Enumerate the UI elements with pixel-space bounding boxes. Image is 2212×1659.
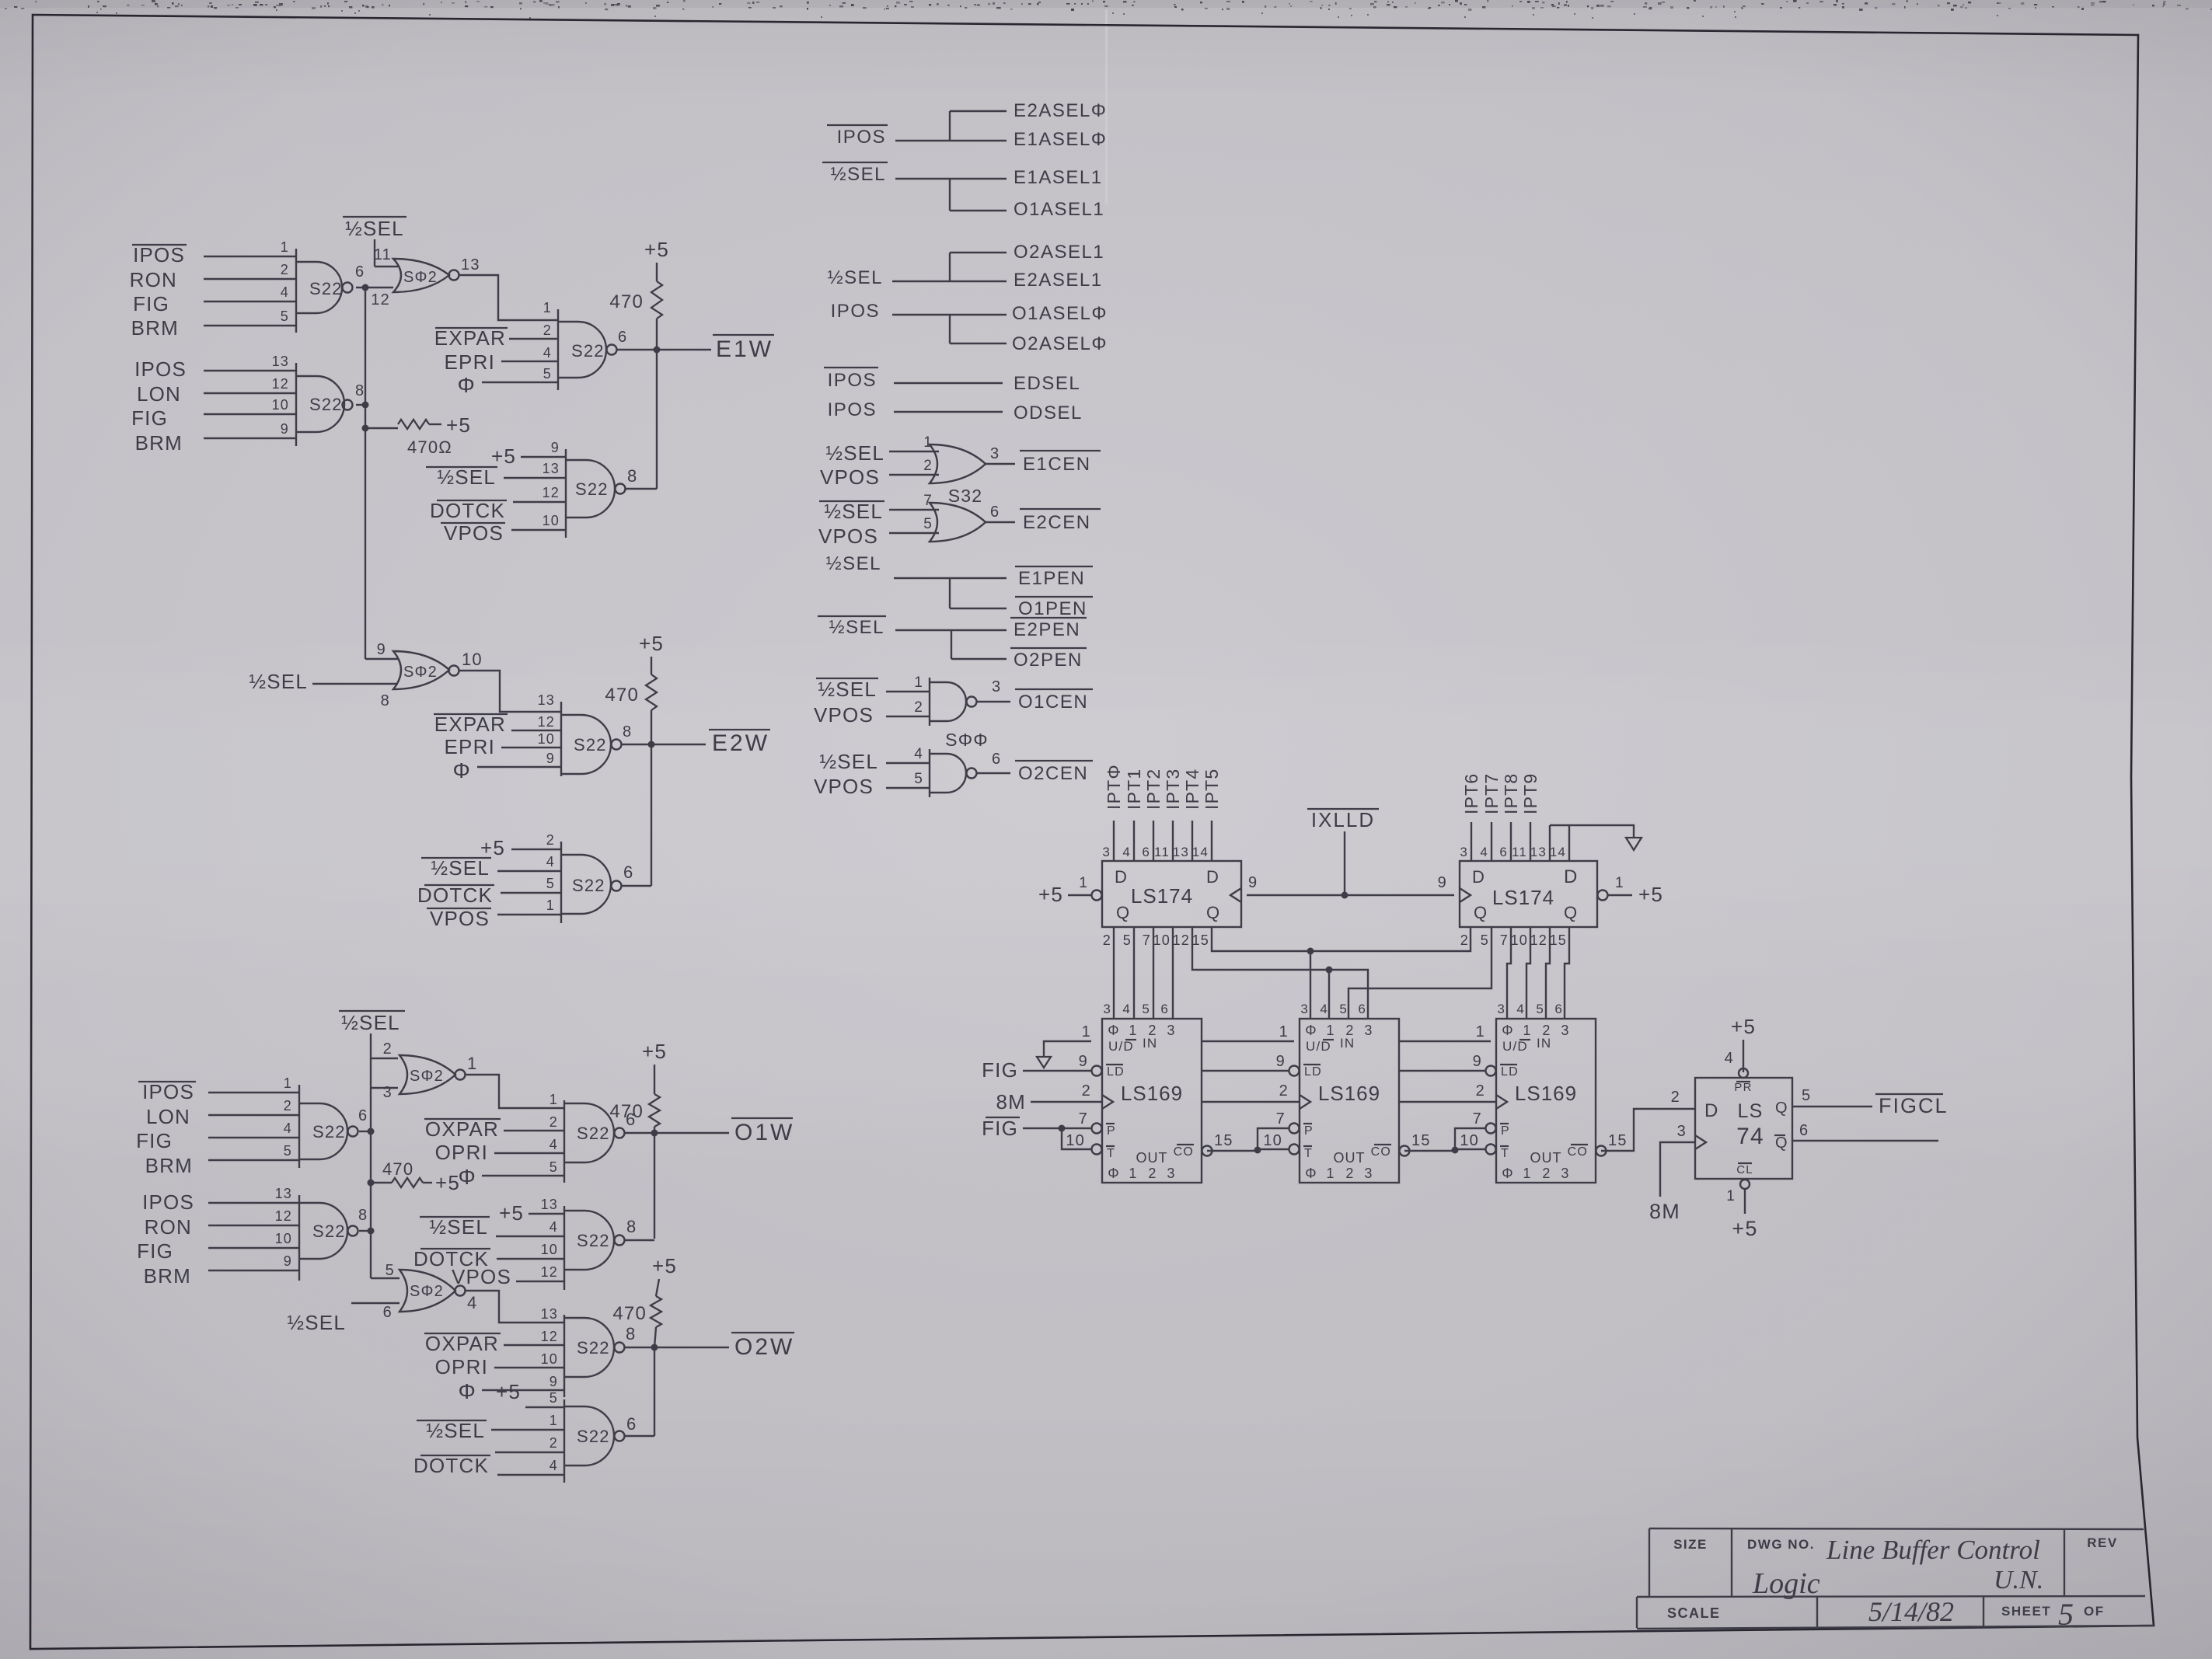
svg-text:S22: S22 bbox=[309, 395, 343, 414]
svg-text:ODSEL: ODSEL bbox=[1014, 403, 1083, 423]
svg-text:IN: IN bbox=[1143, 1036, 1157, 1051]
svg-text:9: 9 bbox=[1438, 874, 1447, 891]
svg-text:OPRI: OPRI bbox=[435, 1355, 488, 1378]
svg-text:15: 15 bbox=[1214, 1132, 1233, 1149]
svg-text:1: 1 bbox=[281, 239, 289, 255]
svg-text:13: 13 bbox=[272, 354, 289, 369]
svg-text:6: 6 bbox=[618, 329, 627, 346]
svg-text:15: 15 bbox=[1192, 932, 1209, 948]
svg-text:Φ: Φ bbox=[458, 1165, 476, 1189]
svg-text:4: 4 bbox=[1320, 1002, 1328, 1016]
svg-text:1: 1 bbox=[1082, 1023, 1091, 1040]
svg-text:8: 8 bbox=[355, 382, 365, 399]
svg-text:½SEL: ½SEL bbox=[828, 267, 883, 288]
svg-text:5: 5 bbox=[914, 771, 923, 787]
svg-text:IPT3: IPT3 bbox=[1163, 769, 1183, 810]
svg-text:6: 6 bbox=[1499, 845, 1508, 859]
svg-text:+5: +5 bbox=[1638, 883, 1663, 906]
svg-text:E2ASELΦ: E2ASELΦ bbox=[1014, 100, 1107, 121]
svg-text:S22: S22 bbox=[572, 876, 605, 895]
svg-text:13: 13 bbox=[1530, 845, 1547, 859]
svg-text:Logic: Logic bbox=[1752, 1567, 1820, 1600]
svg-text:+5: +5 bbox=[642, 1040, 667, 1063]
svg-text:U/D: U/D bbox=[1306, 1039, 1331, 1054]
svg-text:8M: 8M bbox=[1649, 1200, 1680, 1223]
svg-text:2: 2 bbox=[1148, 1166, 1157, 1181]
svg-text:SΦΦ: SΦΦ bbox=[945, 730, 989, 750]
svg-text:8: 8 bbox=[623, 723, 632, 741]
svg-text:Φ: Φ bbox=[1305, 1166, 1317, 1181]
svg-text:10: 10 bbox=[1511, 932, 1528, 948]
svg-text:PR: PR bbox=[1734, 1081, 1752, 1094]
svg-text:15: 15 bbox=[1411, 1132, 1431, 1149]
svg-text:12: 12 bbox=[371, 291, 390, 308]
svg-text:½SEL: ½SEL bbox=[249, 670, 308, 693]
svg-text:Q: Q bbox=[1206, 903, 1220, 922]
svg-text:13: 13 bbox=[543, 461, 560, 476]
svg-text:SΦ2: SΦ2 bbox=[403, 269, 438, 286]
svg-text:IPOS: IPOS bbox=[142, 1190, 194, 1214]
svg-text:3: 3 bbox=[992, 678, 1001, 695]
svg-text:½SEL: ½SEL bbox=[831, 164, 886, 185]
svg-text:½SEL: ½SEL bbox=[431, 856, 490, 880]
svg-text:9: 9 bbox=[284, 1253, 292, 1269]
svg-text:IPOS: IPOS bbox=[828, 399, 877, 420]
svg-text:½SEL: ½SEL bbox=[287, 1311, 346, 1334]
svg-text:CO: CO bbox=[1371, 1145, 1391, 1159]
svg-text:1: 1 bbox=[1079, 875, 1088, 891]
svg-text:6: 6 bbox=[1358, 1002, 1366, 1016]
svg-text:RON: RON bbox=[130, 268, 177, 291]
svg-text:5: 5 bbox=[1123, 932, 1132, 948]
svg-text:LS169: LS169 bbox=[1515, 1082, 1577, 1105]
svg-text:5: 5 bbox=[546, 876, 555, 891]
svg-text:15: 15 bbox=[1550, 932, 1567, 948]
svg-text:E1W: E1W bbox=[716, 336, 773, 362]
svg-text:S22: S22 bbox=[575, 479, 609, 499]
svg-text:SΦ2: SΦ2 bbox=[403, 664, 438, 681]
svg-text:12: 12 bbox=[272, 376, 289, 392]
svg-text:6: 6 bbox=[1142, 845, 1150, 859]
svg-text:O2PEN: O2PEN bbox=[1014, 650, 1083, 671]
svg-text:2: 2 bbox=[1460, 932, 1469, 948]
svg-text:T: T bbox=[1501, 1147, 1509, 1160]
svg-text:12: 12 bbox=[275, 1208, 292, 1224]
svg-text:Q: Q bbox=[1116, 903, 1130, 922]
svg-text:5: 5 bbox=[1481, 932, 1489, 948]
svg-text:1: 1 bbox=[1615, 875, 1624, 891]
svg-text:U.N.: U.N. bbox=[1994, 1566, 2043, 1595]
svg-text:1: 1 bbox=[1279, 1023, 1289, 1040]
svg-text:1: 1 bbox=[1476, 1023, 1485, 1040]
svg-text:6: 6 bbox=[626, 1414, 637, 1434]
svg-text:LS174: LS174 bbox=[1131, 884, 1193, 908]
svg-text:½SEL: ½SEL bbox=[345, 217, 404, 240]
svg-text:Φ: Φ bbox=[1108, 1023, 1120, 1038]
svg-text:10: 10 bbox=[1460, 1132, 1479, 1149]
svg-text:Φ: Φ bbox=[1502, 1166, 1514, 1181]
svg-text:3: 3 bbox=[1300, 1002, 1309, 1016]
svg-text:IPOS: IPOS bbox=[831, 301, 880, 322]
svg-text:IPT6: IPT6 bbox=[1461, 773, 1481, 814]
svg-text:10: 10 bbox=[541, 1351, 558, 1367]
svg-text:S22: S22 bbox=[571, 341, 605, 361]
svg-text:1: 1 bbox=[284, 1075, 292, 1091]
svg-text:7: 7 bbox=[1473, 1110, 1482, 1127]
svg-text:12: 12 bbox=[1173, 932, 1190, 948]
svg-text:S32: S32 bbox=[948, 486, 983, 506]
svg-text:470: 470 bbox=[605, 685, 639, 706]
svg-text:Φ: Φ bbox=[452, 758, 471, 782]
svg-text:½SEL: ½SEL bbox=[437, 465, 496, 489]
svg-text:E1CEN: E1CEN bbox=[1023, 454, 1091, 475]
svg-text:+5: +5 bbox=[1731, 1015, 1756, 1038]
svg-text:2: 2 bbox=[284, 1098, 292, 1114]
svg-text:1: 1 bbox=[1523, 1023, 1531, 1038]
svg-text:14: 14 bbox=[1192, 845, 1209, 859]
svg-text:2: 2 bbox=[1345, 1166, 1354, 1181]
svg-text:FIG: FIG bbox=[137, 1239, 173, 1263]
svg-text:10: 10 bbox=[272, 397, 289, 413]
svg-text:IPOS: IPOS bbox=[142, 1080, 194, 1103]
svg-text:SΦ2: SΦ2 bbox=[410, 1068, 444, 1085]
svg-text:LD: LD bbox=[1107, 1065, 1125, 1079]
svg-text:CL: CL bbox=[1736, 1163, 1753, 1176]
svg-text:SCALE: SCALE bbox=[1667, 1605, 1721, 1621]
svg-text:LS174: LS174 bbox=[1492, 886, 1554, 909]
svg-text:FIG: FIG bbox=[982, 1117, 1018, 1140]
svg-text:IXLLD: IXLLD bbox=[1311, 808, 1375, 831]
svg-text:VPOS: VPOS bbox=[444, 521, 504, 545]
svg-text:6: 6 bbox=[1799, 1122, 1809, 1139]
svg-text:2: 2 bbox=[281, 262, 289, 277]
svg-text:5: 5 bbox=[543, 366, 552, 382]
svg-text:+5: +5 bbox=[652, 1254, 677, 1277]
svg-text:O1W: O1W bbox=[734, 1120, 794, 1145]
svg-text:IPT8: IPT8 bbox=[1501, 773, 1521, 814]
svg-text:LS169: LS169 bbox=[1121, 1082, 1183, 1105]
svg-text:O2W: O2W bbox=[734, 1334, 794, 1360]
svg-text:LON: LON bbox=[137, 382, 181, 406]
svg-text:3: 3 bbox=[1103, 1002, 1111, 1016]
svg-text:8M: 8M bbox=[996, 1090, 1026, 1114]
svg-text:BRM: BRM bbox=[131, 316, 179, 340]
svg-text:10: 10 bbox=[1263, 1132, 1282, 1149]
svg-text:BRM: BRM bbox=[145, 1154, 193, 1177]
svg-text:5: 5 bbox=[281, 308, 289, 324]
svg-text:9: 9 bbox=[1079, 1053, 1088, 1070]
svg-text:4: 4 bbox=[550, 1137, 558, 1152]
svg-text:13: 13 bbox=[541, 1306, 558, 1322]
svg-text:4: 4 bbox=[1122, 1002, 1131, 1016]
svg-text:9: 9 bbox=[281, 421, 289, 437]
svg-text:DOTCK: DOTCK bbox=[417, 884, 493, 907]
svg-text:BRM: BRM bbox=[135, 431, 183, 455]
svg-text:+5: +5 bbox=[446, 413, 471, 437]
svg-text:6: 6 bbox=[355, 263, 365, 281]
svg-text:13: 13 bbox=[1173, 845, 1189, 859]
svg-text:3: 3 bbox=[1167, 1023, 1175, 1038]
svg-text:13: 13 bbox=[461, 256, 480, 274]
svg-text:3: 3 bbox=[1497, 1002, 1505, 1016]
svg-text:8: 8 bbox=[381, 692, 390, 709]
svg-text:4: 4 bbox=[550, 1219, 558, 1235]
svg-text:1: 1 bbox=[550, 1092, 558, 1107]
svg-text:15: 15 bbox=[1608, 1132, 1628, 1149]
svg-text:EDSEL: EDSEL bbox=[1014, 373, 1080, 394]
svg-text:1: 1 bbox=[546, 897, 555, 913]
svg-text:LS169: LS169 bbox=[1318, 1082, 1380, 1105]
svg-text:½SEL: ½SEL bbox=[824, 500, 883, 523]
svg-text:OUT: OUT bbox=[1530, 1150, 1562, 1166]
svg-text:OXPAR: OXPAR bbox=[425, 1117, 499, 1141]
svg-text:12: 12 bbox=[538, 714, 555, 730]
svg-text:4: 4 bbox=[1122, 845, 1131, 859]
svg-text:+5: +5 bbox=[435, 1171, 460, 1194]
svg-text:O2ASELΦ: O2ASELΦ bbox=[1012, 333, 1108, 354]
svg-text:FIG: FIG bbox=[133, 292, 169, 315]
svg-text:12: 12 bbox=[541, 1264, 558, 1280]
svg-text:½SEL: ½SEL bbox=[819, 750, 878, 773]
svg-text:FIG: FIG bbox=[131, 406, 168, 430]
svg-text:6: 6 bbox=[990, 504, 1000, 521]
svg-text:10: 10 bbox=[462, 650, 483, 669]
svg-text:470: 470 bbox=[612, 1303, 647, 1324]
svg-text:4: 4 bbox=[550, 1458, 558, 1473]
svg-text:D: D bbox=[1472, 867, 1485, 887]
svg-text:74: 74 bbox=[1736, 1124, 1764, 1149]
svg-text:1: 1 bbox=[1726, 1188, 1736, 1204]
svg-text:2: 2 bbox=[1279, 1082, 1289, 1100]
svg-text:+5: +5 bbox=[644, 238, 669, 261]
svg-text:10: 10 bbox=[1153, 932, 1171, 948]
svg-text:Φ: Φ bbox=[1305, 1023, 1317, 1038]
svg-text:4: 4 bbox=[914, 746, 923, 762]
svg-text:P: P bbox=[1107, 1124, 1116, 1138]
svg-text:O1ASEL1: O1ASEL1 bbox=[1014, 199, 1104, 220]
svg-text:6: 6 bbox=[1160, 1002, 1169, 1016]
svg-text:IPT9: IPT9 bbox=[1520, 773, 1540, 814]
svg-text:5: 5 bbox=[1536, 1002, 1544, 1016]
svg-text:9: 9 bbox=[1248, 874, 1258, 891]
svg-text:+5: +5 bbox=[499, 1201, 524, 1225]
svg-text:OPRI: OPRI bbox=[435, 1141, 488, 1164]
svg-text:EPRI: EPRI bbox=[445, 350, 495, 374]
svg-text:4: 4 bbox=[1725, 1050, 1734, 1067]
svg-text:8: 8 bbox=[358, 1207, 368, 1224]
svg-text:2: 2 bbox=[1542, 1166, 1551, 1181]
svg-text:S22: S22 bbox=[309, 279, 343, 298]
svg-text:10: 10 bbox=[543, 513, 560, 528]
svg-text:RON: RON bbox=[145, 1215, 192, 1239]
svg-text:9: 9 bbox=[1473, 1053, 1482, 1070]
svg-text:IPT2: IPT2 bbox=[1143, 769, 1164, 810]
svg-text:8: 8 bbox=[627, 466, 637, 486]
svg-text:LD: LD bbox=[1501, 1065, 1519, 1079]
svg-text:D: D bbox=[1206, 867, 1219, 887]
svg-text:2: 2 bbox=[1103, 932, 1111, 948]
svg-text:2: 2 bbox=[546, 832, 555, 848]
svg-text:P: P bbox=[1304, 1124, 1314, 1138]
svg-text:12: 12 bbox=[541, 1329, 558, 1344]
svg-text:IPTΦ: IPTΦ bbox=[1104, 764, 1124, 810]
svg-text:2: 2 bbox=[1671, 1089, 1680, 1106]
svg-text:½SEL: ½SEL bbox=[826, 553, 881, 574]
svg-text:Q: Q bbox=[1775, 1100, 1788, 1117]
svg-text:470Ω: 470Ω bbox=[407, 437, 452, 457]
svg-text:S22: S22 bbox=[312, 1222, 346, 1241]
svg-text:½SEL: ½SEL bbox=[829, 617, 884, 638]
svg-text:IPOS: IPOS bbox=[837, 127, 886, 148]
svg-text:½SEL: ½SEL bbox=[341, 1011, 400, 1034]
svg-text:OUT: OUT bbox=[1334, 1150, 1366, 1166]
svg-text:VPOS: VPOS bbox=[820, 465, 880, 489]
svg-text:1: 1 bbox=[1326, 1166, 1335, 1181]
svg-text:LS: LS bbox=[1738, 1100, 1764, 1122]
svg-text:IPOS: IPOS bbox=[133, 243, 185, 267]
svg-text:Line Buffer Control: Line Buffer Control bbox=[1826, 1535, 2040, 1565]
svg-text:DWG NO.: DWG NO. bbox=[1747, 1537, 1815, 1552]
svg-text:11: 11 bbox=[1512, 845, 1527, 859]
svg-text:½SEL: ½SEL bbox=[426, 1419, 485, 1442]
svg-text:+5: +5 bbox=[496, 1380, 521, 1403]
svg-text:470: 470 bbox=[609, 291, 644, 312]
svg-text:FIGCL: FIGCL bbox=[1879, 1094, 1949, 1117]
svg-text:9: 9 bbox=[546, 751, 555, 766]
svg-text:REV: REV bbox=[2087, 1535, 2117, 1550]
svg-text:IN: IN bbox=[1340, 1036, 1355, 1051]
svg-text:S22: S22 bbox=[577, 1231, 610, 1250]
svg-text:½SEL: ½SEL bbox=[818, 678, 877, 701]
svg-text:IPT5: IPT5 bbox=[1202, 769, 1222, 810]
svg-text:9: 9 bbox=[377, 641, 386, 658]
svg-text:+5: +5 bbox=[1038, 883, 1063, 906]
svg-text:7: 7 bbox=[1079, 1110, 1088, 1127]
svg-text:O1PEN: O1PEN bbox=[1018, 598, 1087, 619]
svg-text:E1ASELΦ: E1ASELΦ bbox=[1014, 129, 1107, 150]
svg-text:5: 5 bbox=[550, 1159, 558, 1175]
svg-text:EXPAR: EXPAR bbox=[434, 326, 506, 350]
svg-text:FIG: FIG bbox=[982, 1058, 1018, 1082]
svg-text:7: 7 bbox=[1143, 932, 1151, 948]
svg-text:1: 1 bbox=[1129, 1166, 1137, 1181]
svg-text:+5: +5 bbox=[639, 632, 664, 655]
svg-text:11: 11 bbox=[374, 246, 392, 263]
svg-text:8: 8 bbox=[626, 1217, 637, 1236]
svg-text:3: 3 bbox=[990, 445, 1000, 462]
svg-text:5: 5 bbox=[284, 1143, 292, 1159]
svg-text:1: 1 bbox=[914, 674, 923, 691]
svg-text:P: P bbox=[1501, 1124, 1510, 1138]
svg-text:2: 2 bbox=[1476, 1082, 1485, 1100]
svg-text:E2W: E2W bbox=[712, 730, 769, 756]
svg-text:OXPAR: OXPAR bbox=[425, 1332, 499, 1355]
svg-text:9: 9 bbox=[550, 1374, 558, 1389]
svg-text:8: 8 bbox=[626, 1324, 636, 1344]
svg-text:6: 6 bbox=[623, 863, 633, 882]
svg-text:SIZE: SIZE bbox=[1673, 1537, 1708, 1552]
svg-text:IPOS: IPOS bbox=[134, 357, 187, 381]
svg-text:Φ: Φ bbox=[457, 373, 476, 397]
svg-text:+5: +5 bbox=[1732, 1217, 1757, 1240]
svg-text:Q: Q bbox=[1474, 903, 1488, 922]
svg-text:6: 6 bbox=[383, 1304, 393, 1321]
svg-text:E1PEN: E1PEN bbox=[1018, 568, 1085, 589]
svg-text:E1ASEL1: E1ASEL1 bbox=[1014, 167, 1103, 188]
svg-text:6: 6 bbox=[358, 1107, 368, 1124]
svg-text:VPOS: VPOS bbox=[818, 525, 878, 548]
svg-text:S22: S22 bbox=[577, 1338, 610, 1358]
svg-text:BRM: BRM bbox=[144, 1264, 191, 1288]
svg-text:½SEL: ½SEL bbox=[825, 441, 884, 465]
svg-text:U/D: U/D bbox=[1108, 1039, 1134, 1054]
svg-text:T: T bbox=[1107, 1147, 1115, 1160]
svg-text:2: 2 bbox=[914, 699, 923, 716]
svg-text:IPOS: IPOS bbox=[828, 370, 877, 391]
svg-text:13: 13 bbox=[538, 692, 555, 708]
svg-text:3: 3 bbox=[1561, 1166, 1569, 1181]
svg-text:1: 1 bbox=[550, 1413, 558, 1428]
svg-text:E2PEN: E2PEN bbox=[1014, 619, 1080, 640]
svg-text:12: 12 bbox=[1530, 932, 1547, 948]
svg-text:VPOS: VPOS bbox=[814, 775, 874, 798]
svg-text:EXPAR: EXPAR bbox=[434, 713, 506, 736]
svg-text:10: 10 bbox=[541, 1242, 558, 1257]
svg-text:2: 2 bbox=[543, 322, 552, 338]
svg-text:½SEL: ½SEL bbox=[429, 1215, 488, 1239]
svg-text:D: D bbox=[1115, 867, 1128, 887]
svg-text:LD: LD bbox=[1304, 1065, 1322, 1079]
svg-text:Q: Q bbox=[1775, 1134, 1788, 1152]
svg-text:470: 470 bbox=[609, 1101, 644, 1122]
svg-text:5: 5 bbox=[923, 516, 933, 532]
svg-text:S22: S22 bbox=[312, 1122, 346, 1141]
svg-text:2: 2 bbox=[383, 1040, 393, 1058]
svg-text:3: 3 bbox=[1364, 1023, 1373, 1038]
svg-text:SΦ2: SΦ2 bbox=[410, 1283, 444, 1300]
svg-text:13: 13 bbox=[275, 1186, 292, 1201]
svg-text:Φ: Φ bbox=[458, 1379, 476, 1403]
svg-text:O1ASELΦ: O1ASELΦ bbox=[1012, 303, 1108, 324]
svg-text:10: 10 bbox=[1066, 1132, 1085, 1149]
svg-text:5: 5 bbox=[386, 1262, 395, 1279]
svg-text:2: 2 bbox=[550, 1114, 558, 1130]
svg-text:CO: CO bbox=[1568, 1145, 1588, 1159]
svg-text:5: 5 bbox=[550, 1390, 558, 1406]
svg-text:3: 3 bbox=[1364, 1166, 1373, 1181]
svg-text:2: 2 bbox=[550, 1435, 558, 1451]
svg-text:DOTCK: DOTCK bbox=[413, 1454, 489, 1477]
svg-text:Q: Q bbox=[1564, 903, 1578, 922]
svg-text:9: 9 bbox=[551, 440, 560, 455]
svg-text:O2CEN: O2CEN bbox=[1018, 763, 1088, 784]
svg-text:IPT7: IPT7 bbox=[1481, 773, 1502, 814]
svg-text:+5: +5 bbox=[491, 444, 516, 468]
svg-text:13: 13 bbox=[541, 1197, 558, 1212]
svg-text:FIG: FIG bbox=[136, 1129, 173, 1152]
svg-text:IPT4: IPT4 bbox=[1182, 769, 1202, 810]
svg-text:3: 3 bbox=[1167, 1166, 1175, 1181]
svg-text:EPRI: EPRI bbox=[445, 735, 495, 758]
svg-text:470: 470 bbox=[382, 1159, 413, 1179]
svg-text:U/D: U/D bbox=[1502, 1039, 1528, 1054]
svg-text:10: 10 bbox=[538, 731, 555, 747]
svg-text:1: 1 bbox=[1129, 1023, 1137, 1038]
svg-text:2: 2 bbox=[1082, 1082, 1091, 1100]
svg-text:VPOS: VPOS bbox=[814, 703, 874, 727]
svg-text:4: 4 bbox=[281, 284, 289, 300]
svg-text:1: 1 bbox=[467, 1054, 477, 1073]
